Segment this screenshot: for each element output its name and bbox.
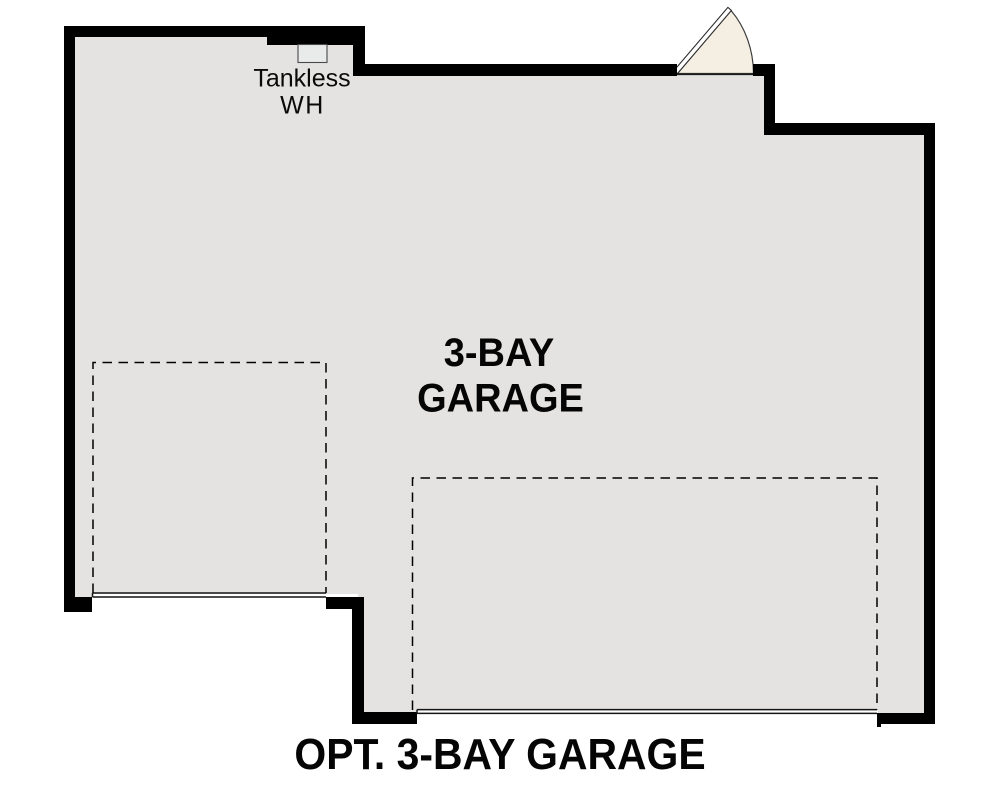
svg-text:GARAGE: GARAGE (417, 377, 584, 421)
svg-text:Tankless: Tankless (253, 65, 350, 93)
svg-text:OPT. 3-BAY GARAGE: OPT. 3-BAY GARAGE (294, 730, 705, 778)
svg-text:3-BAY: 3-BAY (444, 331, 555, 375)
svg-text:WH: WH (280, 92, 325, 120)
